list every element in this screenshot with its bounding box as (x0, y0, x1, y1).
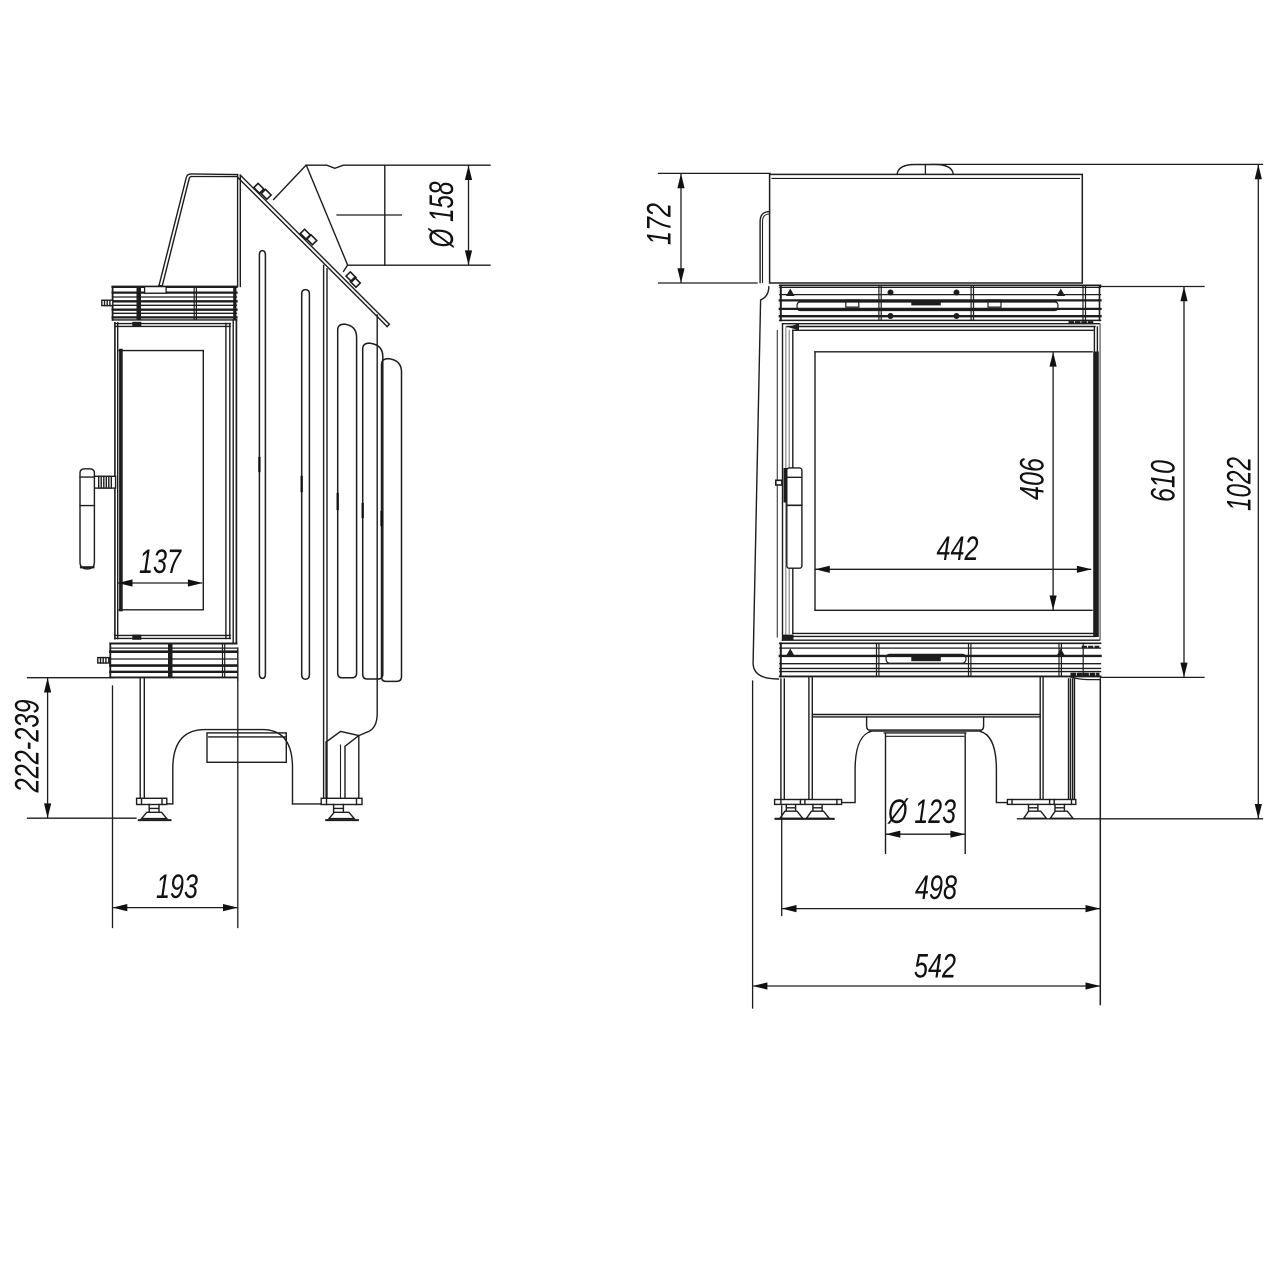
svg-text:222-239: 222-239 (9, 699, 47, 793)
svg-text:Ø 158: Ø 158 (423, 181, 461, 248)
svg-text:Ø 123: Ø 123 (887, 793, 956, 831)
svg-text:542: 542 (914, 948, 956, 986)
svg-text:1022: 1022 (1221, 457, 1259, 511)
svg-text:406: 406 (1014, 458, 1052, 500)
svg-text:610: 610 (1145, 460, 1183, 502)
svg-text:137: 137 (139, 543, 182, 581)
svg-text:172: 172 (641, 203, 679, 245)
svg-text:498: 498 (915, 869, 957, 907)
svg-text:193: 193 (156, 868, 198, 906)
svg-text:442: 442 (937, 530, 979, 568)
